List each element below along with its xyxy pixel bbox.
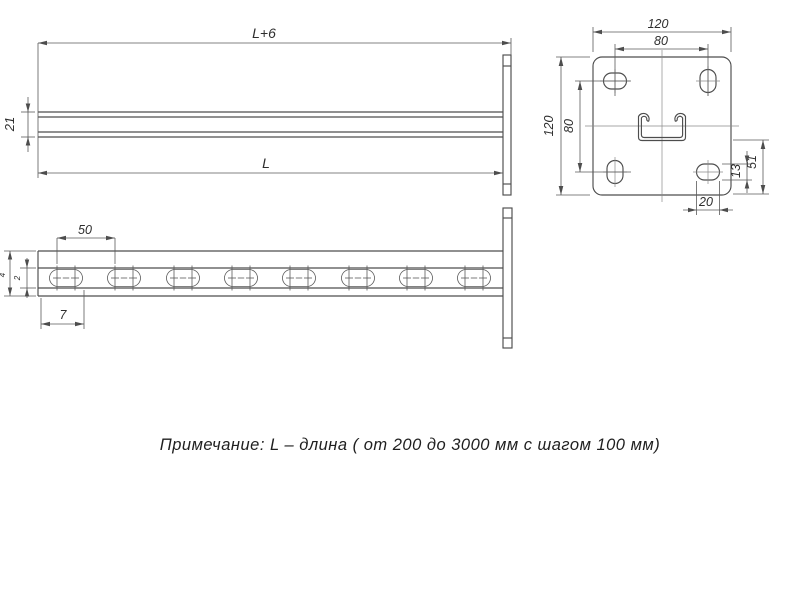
dim-hole-width: 20 — [683, 181, 733, 215]
front-view-flange — [503, 38, 511, 195]
dim-text-120-height: 120 — [542, 116, 556, 137]
slot-hole — [342, 266, 375, 291]
end-view: 120 80 120 80 — [542, 17, 769, 215]
dim-text-120-width: 120 — [648, 17, 669, 31]
dim-text-80-top: 80 — [654, 34, 668, 48]
slot-row — [50, 266, 491, 291]
dim-overall-length: L+6 — [38, 25, 511, 45]
slot-hole — [50, 266, 83, 291]
slot-hole — [167, 266, 200, 291]
front-view-strut — [38, 43, 503, 178]
dim-text-7: 7 — [60, 308, 68, 322]
dim-hole-spacing-vertical: 80 — [562, 81, 631, 172]
dim-outer-width: 4 — [0, 251, 36, 296]
front-view: L+6 21 L — [2, 25, 511, 195]
dim-inner-width: 2 — [13, 258, 36, 298]
slot-hole — [283, 266, 316, 291]
dim-hole-height: 13 — [722, 151, 752, 193]
dim-text-4: 4 — [0, 272, 7, 277]
dim-length: L — [38, 155, 503, 175]
mounting-hole-bottom-right — [693, 160, 723, 184]
dim-text-20: 20 — [698, 195, 713, 209]
dim-profile-height: 21 — [2, 97, 35, 152]
top-view-flange — [503, 208, 512, 348]
dim-text-l: L — [262, 155, 270, 171]
dim-text-80-left: 80 — [562, 119, 576, 133]
slot-hole — [108, 266, 141, 291]
note-text: Примечание: L – длина ( от 200 до 3000 м… — [160, 436, 660, 454]
slot-hole — [400, 266, 433, 291]
top-view: 50 7 4 2 — [0, 208, 512, 348]
dim-hole-spacing-horizontal: 80 — [615, 34, 708, 96]
dim-text-50: 50 — [78, 223, 92, 237]
drawing-canvas: L+6 21 L — [0, 0, 800, 600]
dim-slot-pitch: 50 — [57, 223, 115, 264]
dim-text-21: 21 — [2, 117, 17, 132]
dim-text-l-plus-6: L+6 — [252, 25, 276, 41]
dim-text-2: 2 — [13, 275, 22, 281]
dim-text-13: 13 — [729, 164, 743, 178]
slot-hole — [225, 266, 258, 291]
slot-hole — [458, 266, 491, 291]
technical-drawing-svg: L+6 21 L — [0, 0, 800, 600]
top-view-strut — [38, 251, 503, 296]
